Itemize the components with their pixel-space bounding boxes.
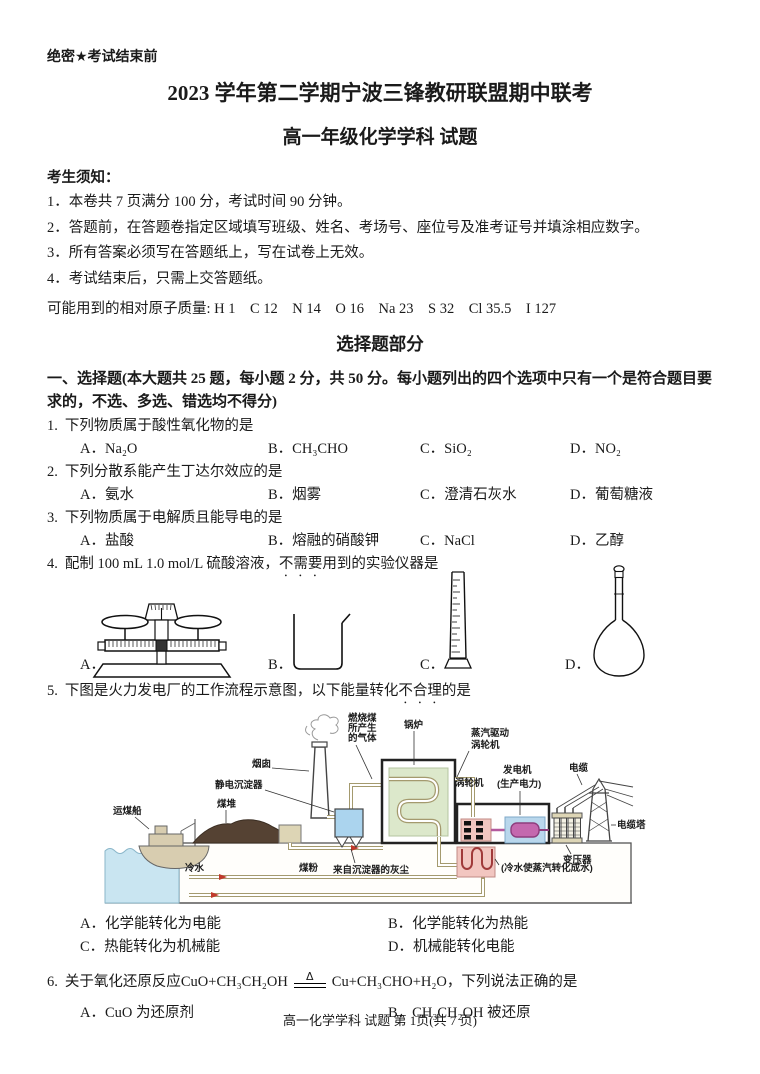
question-4-text-before: 配制 100 mL 1.0 mol/L 硫酸溶液，	[65, 556, 279, 572]
option-2d: D．葡萄糖液	[570, 484, 713, 507]
label-cable: 电缆	[569, 762, 589, 774]
power-plant-diagram: 燃烧煤 所产生 的气体 锅炉 蒸汽驱动 涡轮机 烟囱 静电沉淀器 涡轮机 发电机…	[105, 707, 635, 905]
label-generator-note: (生产电力)	[497, 778, 541, 790]
notice-item-3: 3．所有答案必须写在答题纸上，写在试卷上无效。	[47, 241, 713, 266]
question-4-emphasis: 不需要	[279, 556, 323, 572]
section-part-title: 选择题部分	[47, 331, 713, 356]
question-6: 6.关于氧化还原反应 CuO+CH₃CH₂OHΔCu+CH₃CHO+H₂O，下列…	[47, 966, 713, 998]
label-chimney: 烟囱	[252, 758, 271, 770]
option-2c: C．澄清石灰水	[420, 484, 570, 507]
chimney	[311, 742, 329, 818]
question-3-text: 下列物质属于电解质且能导电的是	[65, 510, 283, 526]
question-4-apparatus-figure: A． B． C． D．	[47, 580, 713, 680]
confidential-banner: 绝密★考试结束前	[47, 46, 713, 66]
delta-symbol: Δ	[306, 971, 314, 982]
question-4-number: 4.	[47, 556, 58, 572]
label-steam-line2: 涡轮机	[471, 739, 500, 751]
question-3: 3.下列物质属于电解质且能导电的是	[47, 507, 713, 530]
question-5-text-before: 下图是火力发电厂的工作流程示意图，以下能量转化	[65, 683, 399, 699]
question-1-number: 1.	[47, 418, 58, 434]
reaction-rhs: Cu+CH₃CHO+H₂O	[332, 966, 447, 998]
option-2b: B．烟雾	[268, 484, 420, 507]
label-coal-ship: 运煤船	[113, 805, 142, 817]
candidate-notice: 考生须知： 1．本卷共 7 页满分 100 分，考试时间 90 分钟。 2．答题…	[47, 167, 713, 292]
notice-item-2: 2．答题前，在答题卷指定区域填写班级、姓名、考场号、座位号及准考证号并填涂相应数…	[47, 216, 713, 241]
notice-heading: 考生须知：	[47, 167, 713, 190]
question-5: 5.下图是火力发电厂的工作流程示意图，以下能量转化不合理的是	[47, 680, 713, 707]
question-2-text: 下列分散系能产生丁达尔效应的是	[65, 464, 283, 480]
label-ash: 来自沉淀器的灰尘	[332, 864, 410, 876]
reaction-condition: Δ	[294, 971, 326, 988]
option-5c: C．热能转化为机械能	[80, 936, 388, 959]
balance-icon	[93, 600, 231, 680]
apparatus-label-c: C．	[420, 653, 444, 674]
label-condenser-note: (冷水使蒸汽转化成水)	[501, 862, 593, 874]
option-5a: A．化学能转化为电能	[80, 913, 388, 936]
condenser	[457, 847, 495, 877]
question-5-text-after: 的是	[442, 683, 471, 699]
exam-subtitle: 高一年级化学学科 试题	[47, 122, 713, 149]
option-5b: B．化学能转化为热能	[388, 913, 713, 936]
coal-hopper	[279, 825, 301, 843]
question-2-number: 2.	[47, 464, 58, 480]
question-5-emphasis: 不合理	[398, 683, 442, 699]
option-1b: B．CH₃CHO	[268, 438, 420, 461]
question-5-options: A．化学能转化为电能 B．化学能转化为热能 C．热能转化为机械能 D．机械能转化…	[80, 913, 713, 959]
label-coal-powder: 煤粉	[299, 862, 319, 874]
apparatus-label-a: A．	[80, 653, 105, 674]
coal-pile	[193, 819, 291, 842]
label-steam-line1: 蒸汽驱动	[471, 727, 510, 739]
apparatus-label-d: D．	[565, 653, 590, 674]
option-1c: C．SiO₂	[420, 438, 570, 461]
question-3-options: A．盐酸 B．熔融的硝酸钾 C．NaCl D．乙醇	[80, 530, 713, 553]
question-5-number: 5.	[47, 683, 58, 699]
apparatus-label-b: B．	[268, 653, 292, 674]
label-cold-water: 冷水	[185, 862, 205, 874]
beaker-icon	[290, 610, 352, 672]
option-3a: A．盐酸	[80, 530, 268, 553]
option-5d: D．机械能转化电能	[388, 936, 713, 959]
question-6-text-before: 关于氧化还原反应	[65, 966, 181, 998]
section-instructions: 一、选择题(本大题共 25 题，每小题 2 分，共 50 分。每小题列出的四个选…	[47, 368, 713, 415]
exam-paper-page: 绝密★考试结束前 2023 学年第二学期宁波三锋教研联盟期中联考 高一年级化学学…	[0, 0, 760, 1074]
question-4-text-after: 用到的实验仪器是	[322, 556, 438, 572]
electrostatic-precipitator	[335, 809, 363, 847]
exam-title: 2023 学年第二学期宁波三锋教研联盟期中联考	[47, 80, 713, 106]
boiler	[382, 760, 455, 843]
label-cable-tower: 电缆塔	[617, 819, 646, 831]
question-2: 2.下列分散系能产生丁达尔效应的是	[47, 461, 713, 484]
question-1: 1.下列物质属于酸性氧化物的是	[47, 415, 713, 438]
option-3d: D．乙醇	[570, 530, 713, 553]
transformer	[552, 807, 582, 843]
option-2a: A．氨水	[80, 484, 268, 507]
question-6-number: 6.	[47, 966, 58, 998]
label-generator: 发电机	[502, 764, 532, 776]
smoke	[311, 715, 338, 740]
label-turbine: 涡轮机	[455, 777, 484, 789]
measuring-cylinder-icon	[443, 566, 473, 676]
question-1-options: A．Na₂O B．CH₃CHO C．SiO₂ D．NO₂	[80, 438, 713, 461]
double-bond-line	[294, 983, 326, 988]
notice-item-4: 4．考试结束后，只需上交答题纸。	[47, 267, 713, 292]
option-3c: C．NaCl	[420, 530, 570, 553]
generator	[505, 817, 549, 843]
option-1d: D．NO₂	[570, 438, 713, 461]
option-3b: B．熔融的硝酸钾	[268, 530, 420, 553]
label-precipitator: 静电沉淀器	[215, 779, 263, 791]
question-1-text: 下列物质属于酸性氧化物的是	[65, 418, 254, 434]
question-6-text-after: ，下列说法正确的是	[447, 966, 578, 998]
label-gas-line3: 的气体	[348, 732, 377, 744]
volumetric-flask-icon	[590, 564, 648, 680]
atomic-mass-line: 可能用到的相对原子质量: H 1 C 12 N 14 O 16 Na 23 S …	[47, 299, 713, 319]
question-2-options: A．氨水 B．烟雾 C．澄清石灰水 D．葡萄糖液	[80, 484, 713, 507]
question-3-number: 3.	[47, 510, 58, 526]
option-1a: A．Na₂O	[80, 438, 268, 461]
notice-item-1: 1．本卷共 7 页满分 100 分，考试时间 90 分钟。	[47, 190, 713, 215]
page-footer: 高一化学学科 试题 第 1页(共 7 页)	[0, 1010, 760, 1029]
label-coal-pile: 煤堆	[217, 798, 237, 810]
label-boiler: 锅炉	[404, 719, 424, 731]
reaction-lhs: CuO+CH₃CH₂OH	[181, 966, 288, 998]
